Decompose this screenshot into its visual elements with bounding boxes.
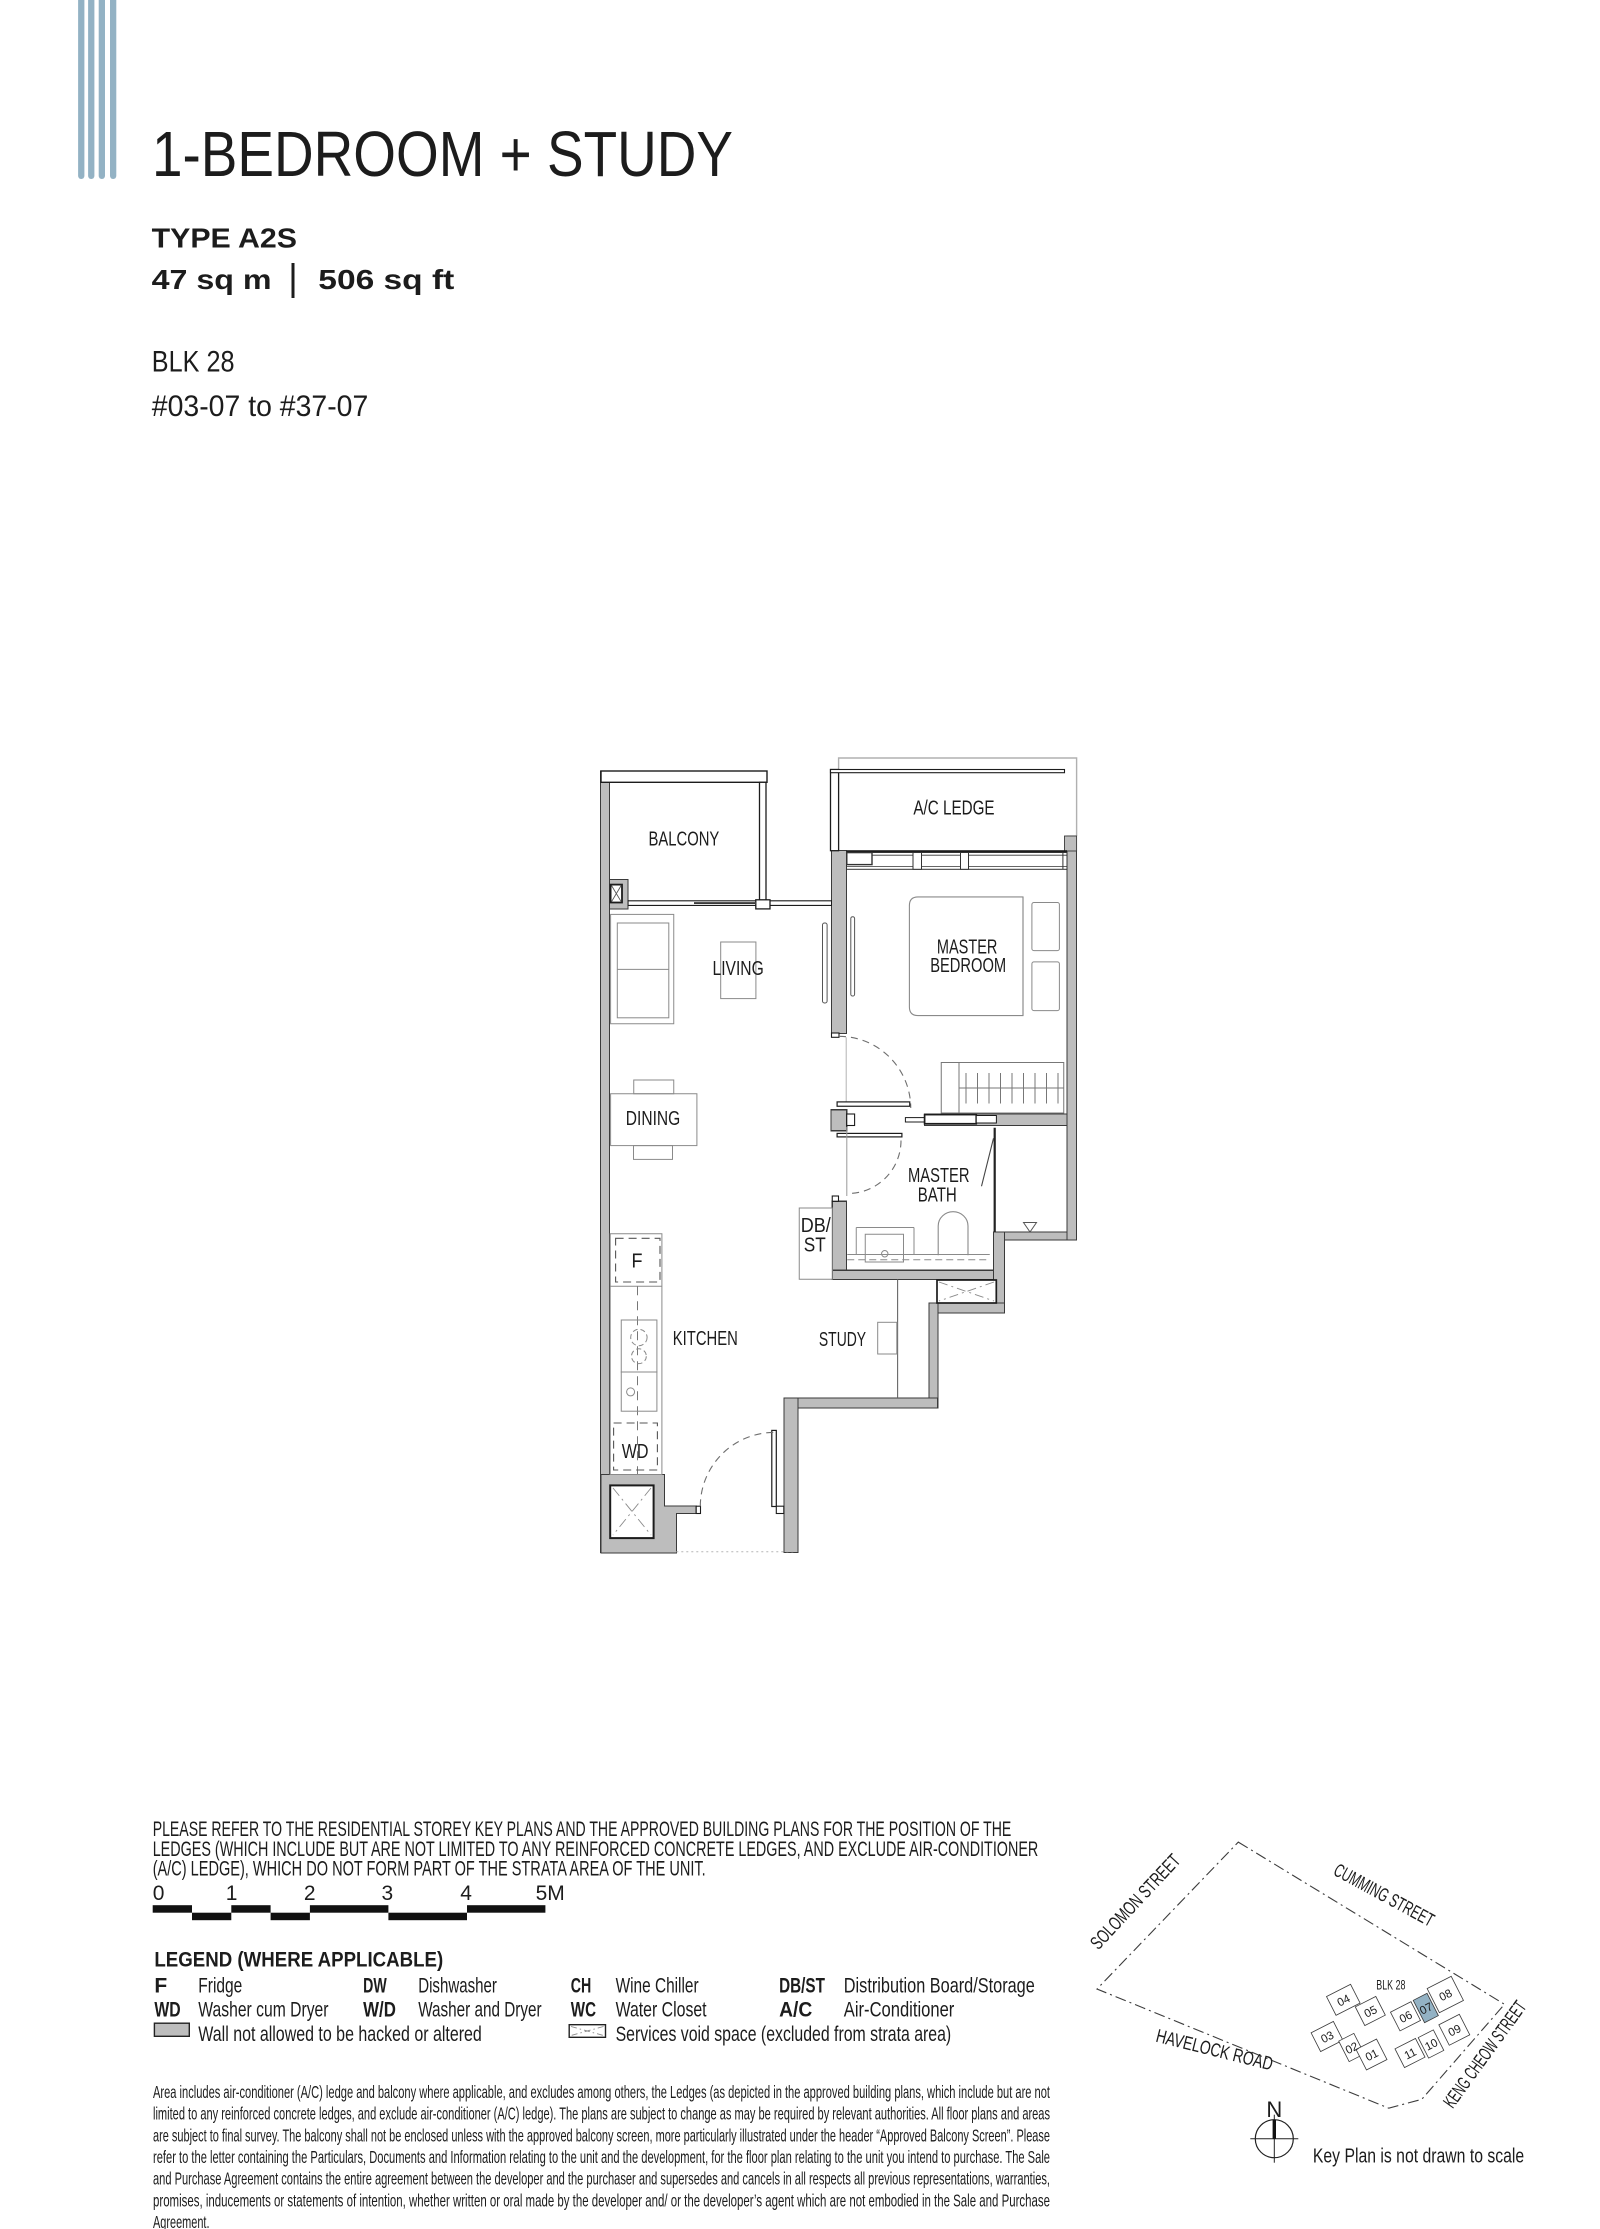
svg-text:2: 2 (304, 1882, 316, 1905)
svg-text:DW: DW (363, 1975, 387, 1998)
svg-text:3: 3 (382, 1882, 394, 1905)
svg-text:Distribution Board/Storage: Distribution Board/Storage (844, 1975, 1035, 1998)
svg-text:STUDY: STUDY (819, 1328, 866, 1351)
svg-text:Wall not allowed to be hacked: Wall not allowed to be hacked or altered (198, 2023, 482, 2046)
svg-text:TYPE A2S: TYPE A2S (152, 223, 297, 254)
svg-text:Air-Conditioner: Air-Conditioner (844, 1998, 955, 2021)
svg-text:BALCONY: BALCONY (649, 828, 720, 851)
svg-text:A/C: A/C (779, 1998, 812, 2021)
svg-text:Washer cum Dryer: Washer cum Dryer (198, 1998, 328, 2021)
svg-text:Key Plan is not drawn to scale: Key Plan is not drawn to scale (1313, 2146, 1524, 2168)
svg-text:are subject to final survey. T: are subject to final survey. The balcony… (153, 2125, 1050, 2145)
svg-text:and Purchase Agreement contain: and Purchase Agreement contains the enti… (153, 2169, 1050, 2189)
svg-text:CH: CH (571, 1975, 592, 1998)
svg-text:BLK 28: BLK 28 (1376, 1977, 1405, 1992)
svg-text:N: N (1266, 2097, 1282, 2122)
svg-text:HAVELOCK ROAD: HAVELOCK ROAD (1154, 2026, 1275, 2075)
svg-text:Agreement.: Agreement. (153, 2212, 210, 2229)
svg-text:KITCHEN: KITCHEN (673, 1327, 738, 1350)
svg-text:promises, inducements or state: promises, inducements or statements of i… (153, 2190, 1050, 2210)
svg-text:F: F (632, 1251, 643, 1273)
svg-text:BLK 28: BLK 28 (152, 346, 235, 379)
svg-text:limited to any reinforced conc: limited to any reinforced concrete ledge… (153, 2104, 1050, 2124)
svg-text:CUMMING STREET: CUMMING STREET (1330, 1860, 1438, 1932)
svg-text:SOLOMON STREET: SOLOMON STREET (1087, 1850, 1186, 1954)
svg-text:DINING: DINING (626, 1107, 680, 1130)
svg-text:Water Closet: Water Closet (616, 1998, 707, 2021)
svg-text:Services void space (excluded: Services void space (excluded from strat… (616, 2023, 952, 2046)
svg-text:Fridge: Fridge (198, 1975, 242, 1998)
svg-text:LEGEND (WHERE APPLICABLE): LEGEND (WHERE APPLICABLE) (154, 1948, 443, 1972)
svg-text:BEDROOM: BEDROOM (930, 954, 1006, 977)
svg-text:47 sq m: 47 sq m (152, 264, 272, 295)
svg-text:WD: WD (622, 1441, 649, 1463)
svg-text:Area includes air-conditioner: Area includes air-conditioner (A/C) ledg… (153, 2082, 1050, 2102)
svg-text:KENG CHEOW STREET: KENG CHEOW STREET (1440, 1997, 1532, 2112)
svg-text:0: 0 (153, 1882, 165, 1905)
svg-text:F: F (154, 1975, 167, 1998)
svg-text:DB/ST: DB/ST (779, 1975, 825, 1998)
svg-text:506 sq ft: 506 sq ft (318, 264, 454, 295)
svg-text:Dishwasher: Dishwasher (418, 1975, 497, 1998)
svg-text:1-BEDROOM + STUDY: 1-BEDROOM + STUDY (152, 118, 733, 190)
svg-text:5M: 5M (536, 1882, 565, 1905)
svg-text:refer to the letter containing: refer to the letter containing the Parti… (153, 2147, 1050, 2167)
svg-text:W/D: W/D (363, 1998, 396, 2021)
svg-text:1: 1 (226, 1882, 238, 1905)
svg-text:4: 4 (460, 1882, 472, 1905)
svg-text:ST: ST (804, 1235, 826, 1257)
svg-text:#03-07 to #37-07: #03-07 to #37-07 (152, 390, 368, 423)
svg-text:(A/C) LEDGE), WHICH DO NOT FOR: (A/C) LEDGE), WHICH DO NOT FORM PART OF … (153, 1857, 706, 1880)
svg-text:Wine Chiller: Wine Chiller (616, 1975, 699, 1998)
svg-text:BATH: BATH (918, 1183, 957, 1206)
svg-text:LIVING: LIVING (713, 957, 764, 980)
svg-text:WC: WC (571, 1998, 596, 2021)
svg-text:Washer and Dryer: Washer and Dryer (418, 1998, 541, 2021)
svg-text:WD: WD (154, 1998, 180, 2021)
svg-text:A/C LEDGE: A/C LEDGE (913, 797, 994, 820)
